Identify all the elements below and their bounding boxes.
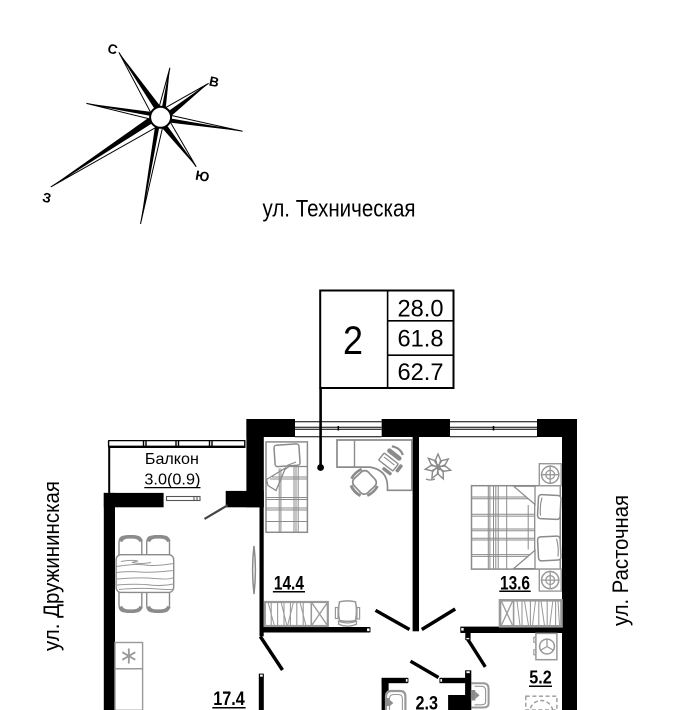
svg-text:61.8: 61.8 [398, 326, 444, 353]
svg-text:ул. Расточная: ул. Расточная [608, 495, 633, 626]
svg-text:Балкон: Балкон [145, 451, 199, 468]
svg-text:3.0(0.9): 3.0(0.9) [144, 472, 200, 489]
svg-text:5.2: 5.2 [529, 667, 552, 688]
svg-text:2: 2 [343, 319, 363, 363]
svg-text:62.7: 62.7 [398, 359, 444, 386]
svg-text:2.3: 2.3 [416, 693, 439, 710]
svg-text:28.0: 28.0 [398, 295, 444, 322]
svg-text:Ю: Ю [194, 168, 210, 185]
svg-text:ул. Дружининская: ул. Дружининская [39, 481, 64, 651]
svg-text:17.4: 17.4 [213, 688, 245, 710]
svg-text:ул. Техническая: ул. Техническая [263, 195, 416, 222]
